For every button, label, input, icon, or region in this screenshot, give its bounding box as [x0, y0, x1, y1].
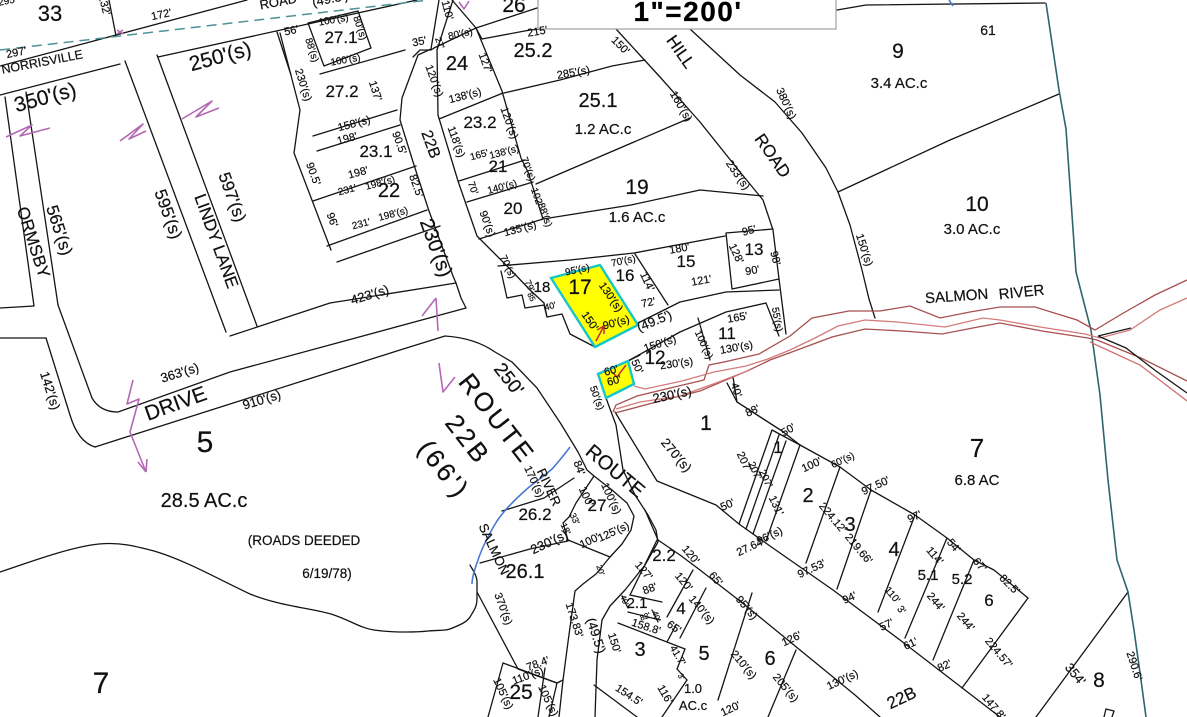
svg-text:26.2: 26.2 — [518, 505, 551, 524]
svg-text:16: 16 — [616, 266, 635, 285]
svg-text:25.2: 25.2 — [514, 40, 553, 62]
svg-text:18: 18 — [534, 279, 551, 296]
svg-text:21: 21 — [489, 157, 508, 176]
svg-text:9: 9 — [892, 40, 904, 63]
svg-text:5.2: 5.2 — [952, 571, 973, 588]
svg-text:7: 7 — [93, 667, 110, 700]
svg-text:1: 1 — [773, 438, 782, 457]
svg-text:5: 5 — [197, 426, 214, 459]
svg-text:6.8 AC: 6.8 AC — [954, 472, 999, 489]
svg-text:33: 33 — [38, 1, 62, 26]
svg-text:1.2 AC.c: 1.2 AC.c — [575, 121, 632, 138]
svg-text:AC.c: AC.c — [679, 698, 708, 713]
svg-text:23.1: 23.1 — [359, 142, 392, 161]
svg-text:3.0 AC.c: 3.0 AC.c — [944, 221, 1001, 238]
svg-text:4: 4 — [888, 539, 899, 561]
svg-text:3: 3 — [634, 639, 645, 661]
svg-text:(ROADS DEEDED: (ROADS DEEDED — [248, 533, 361, 548]
svg-text:2.2: 2.2 — [652, 546, 676, 565]
svg-text:13: 13 — [745, 240, 764, 259]
svg-text:6/19/78): 6/19/78) — [302, 566, 352, 581]
svg-text:27: 27 — [588, 496, 607, 515]
svg-text:1.0: 1.0 — [684, 681, 702, 696]
svg-text:2: 2 — [802, 485, 813, 507]
svg-text:25.1: 25.1 — [579, 90, 618, 112]
svg-text:3.4 AC.c: 3.4 AC.c — [871, 75, 928, 92]
svg-text:1"=200': 1"=200' — [633, 0, 742, 27]
svg-text:11: 11 — [718, 324, 736, 343]
svg-text:27.2: 27.2 — [325, 82, 358, 101]
svg-text:61: 61 — [980, 22, 996, 38]
svg-text:26.1: 26.1 — [506, 561, 545, 583]
svg-text:15: 15 — [677, 252, 696, 271]
svg-text:27.1: 27.1 — [324, 28, 357, 47]
svg-text:5: 5 — [698, 643, 709, 665]
svg-text:22: 22 — [378, 180, 400, 202]
svg-text:90': 90' — [744, 264, 760, 278]
svg-text:1: 1 — [700, 412, 712, 435]
svg-text:26: 26 — [502, 0, 525, 17]
svg-text:17: 17 — [568, 276, 591, 299]
svg-text:23.2: 23.2 — [463, 113, 496, 132]
svg-text:6: 6 — [984, 591, 993, 610]
svg-text:1.6 AC.c: 1.6 AC.c — [609, 209, 666, 226]
svg-text:6: 6 — [764, 648, 775, 670]
svg-text:10: 10 — [965, 193, 988, 216]
svg-text:20: 20 — [504, 199, 523, 218]
svg-text:4: 4 — [676, 599, 685, 618]
svg-text:28.5 AC.c: 28.5 AC.c — [161, 490, 248, 512]
svg-text:8: 8 — [1093, 669, 1105, 692]
svg-text:5.1: 5.1 — [918, 567, 939, 584]
svg-text:24: 24 — [446, 53, 468, 75]
svg-text:19: 19 — [625, 176, 648, 199]
svg-text:7: 7 — [970, 433, 984, 463]
